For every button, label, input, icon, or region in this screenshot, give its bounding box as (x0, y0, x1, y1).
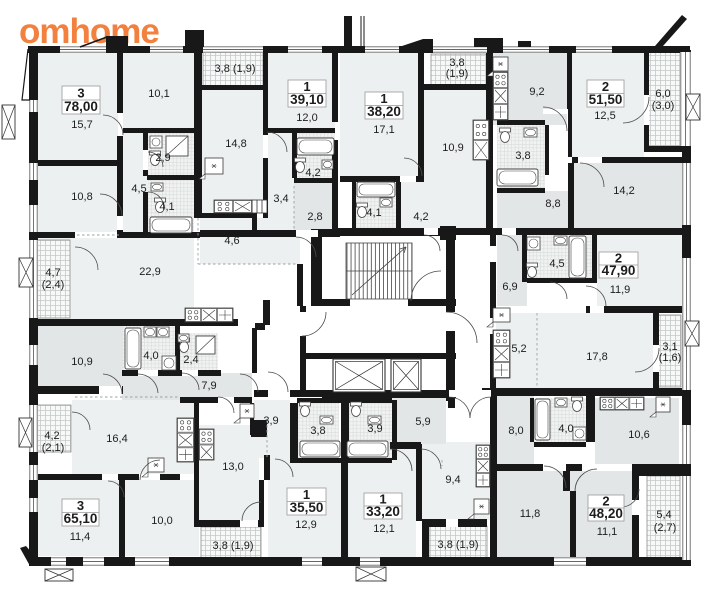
svg-text:17,8: 17,8 (586, 351, 607, 363)
svg-text:78,00: 78,00 (64, 99, 98, 114)
svg-text:3,9: 3,9 (367, 423, 382, 435)
svg-text:4,6: 4,6 (224, 235, 239, 247)
svg-text:(3,0): (3,0) (652, 100, 675, 112)
svg-text:10,6: 10,6 (628, 429, 649, 441)
svg-text:3,8: 3,8 (310, 425, 325, 437)
svg-text:38,20: 38,20 (367, 104, 401, 119)
svg-text:10,8: 10,8 (71, 191, 92, 203)
svg-text:6,9: 6,9 (502, 281, 517, 293)
svg-text:8,0: 8,0 (508, 425, 523, 437)
svg-text:9,2: 9,2 (529, 86, 544, 98)
svg-text:12,1: 12,1 (373, 523, 394, 535)
svg-text:4,0: 4,0 (558, 423, 573, 435)
svg-text:4,7: 4,7 (45, 267, 60, 279)
svg-text:13,0: 13,0 (222, 461, 243, 473)
svg-text:11,1: 11,1 (597, 526, 618, 538)
svg-text:4,1: 4,1 (366, 207, 381, 219)
svg-text:11,4: 11,4 (70, 531, 91, 543)
svg-text:4,5: 4,5 (131, 183, 146, 195)
svg-text:4,2: 4,2 (305, 167, 320, 179)
svg-text:7,9: 7,9 (201, 380, 216, 392)
svg-text:48,20: 48,20 (589, 506, 623, 521)
svg-text:3,8 (1,9): 3,8 (1,9) (215, 63, 256, 75)
svg-text:3,8 (1,9): 3,8 (1,9) (213, 540, 254, 552)
svg-text:51,50: 51,50 (589, 92, 623, 107)
svg-text:12,9: 12,9 (295, 519, 316, 531)
svg-text:22,9: 22,9 (139, 266, 160, 278)
svg-text:4,2: 4,2 (413, 211, 428, 223)
svg-text:4,0: 4,0 (143, 350, 158, 362)
svg-text:3,9: 3,9 (263, 415, 278, 427)
svg-text:(2,1): (2,1) (42, 442, 65, 454)
svg-text:10,9: 10,9 (71, 356, 92, 368)
svg-text:4,1: 4,1 (159, 201, 174, 213)
svg-text:47,90: 47,90 (602, 263, 636, 278)
svg-text:3,8: 3,8 (515, 150, 530, 162)
svg-text:(2,7): (2,7) (654, 522, 677, 534)
svg-text:8,8: 8,8 (545, 198, 560, 210)
svg-text:(1,9): (1,9) (446, 68, 469, 80)
svg-text:39,10: 39,10 (290, 92, 324, 107)
svg-text:10,1: 10,1 (148, 88, 169, 100)
svg-text:6,0: 6,0 (655, 88, 670, 100)
svg-text:14,8: 14,8 (225, 138, 246, 150)
svg-text:5,9: 5,9 (415, 416, 430, 428)
svg-text:15,7: 15,7 (71, 119, 92, 131)
svg-text:9,4: 9,4 (445, 474, 460, 486)
svg-text:2,9: 2,9 (155, 152, 170, 164)
svg-text:2,4: 2,4 (183, 354, 198, 366)
svg-text:65,10: 65,10 (64, 511, 98, 526)
svg-text:2,8: 2,8 (307, 211, 322, 223)
svg-text:10,0: 10,0 (151, 515, 172, 527)
svg-text:(1,6): (1,6) (659, 352, 682, 364)
svg-text:3,4: 3,4 (273, 193, 288, 205)
svg-text:12,0: 12,0 (296, 112, 317, 124)
svg-text:14,2: 14,2 (613, 185, 634, 197)
svg-text:3,8 (1,9): 3,8 (1,9) (438, 539, 479, 551)
svg-text:12,5: 12,5 (594, 110, 615, 122)
svg-text:11,8: 11,8 (520, 508, 541, 520)
svg-text:35,50: 35,50 (290, 500, 324, 515)
svg-text:11,9: 11,9 (610, 284, 631, 296)
svg-text:5,4: 5,4 (656, 509, 671, 521)
svg-text:(2,4): (2,4) (42, 279, 65, 291)
svg-text:33,20: 33,20 (366, 504, 400, 519)
svg-text:17,1: 17,1 (373, 124, 394, 136)
svg-text:4,5: 4,5 (549, 258, 564, 270)
svg-text:10,9: 10,9 (442, 142, 463, 154)
svg-text:16,4: 16,4 (106, 433, 127, 445)
svg-text:omhome: omhome (19, 12, 159, 51)
svg-text:5,2: 5,2 (511, 343, 526, 355)
svg-text:4,2: 4,2 (44, 430, 59, 442)
